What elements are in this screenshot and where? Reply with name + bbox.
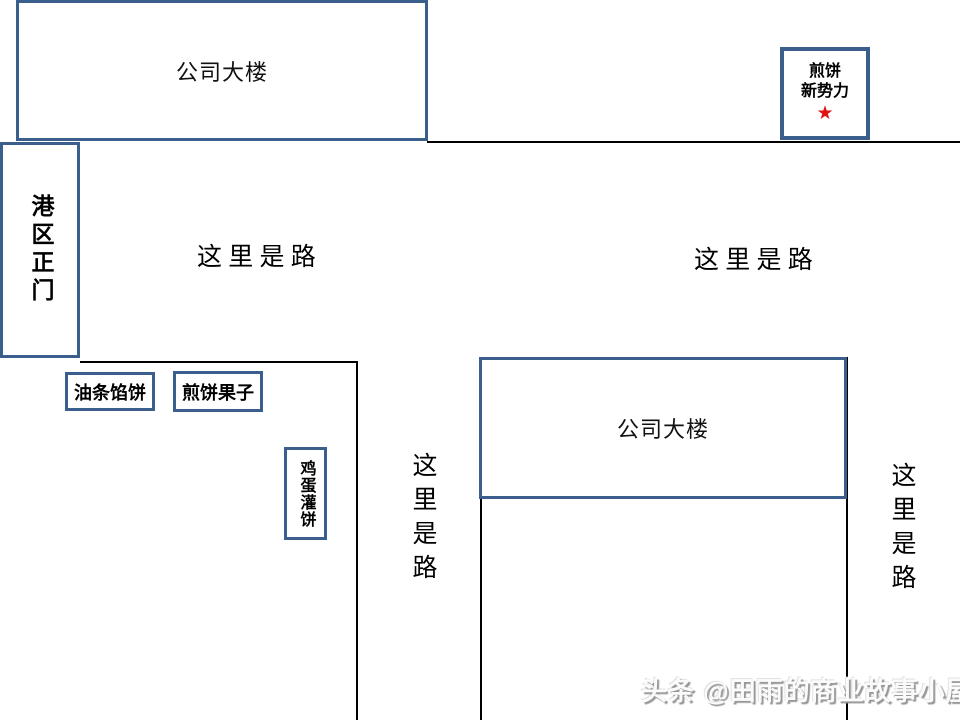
building-top-left: 公司大楼 [16, 0, 428, 141]
road-text-right: 这 里 是 路 [694, 240, 813, 276]
star-icon: ★ [816, 103, 833, 125]
snack-box-jianbing-guozi: 煎饼果子 [173, 371, 263, 412]
road-text-middle-vertical: 这里是路 [404, 452, 440, 588]
snack-label-jianbing-guozi: 煎饼果子 [182, 379, 254, 405]
snack-box-jidan-guanbing: 鸡蛋灌饼 [284, 447, 327, 540]
watermark-text: 头条 @田雨的商业故事小屋 [641, 671, 960, 708]
pancake-stall-box: 煎饼 新势力 ★ [780, 47, 870, 140]
street-map-diagram: 公司大楼 煎饼 新势力 ★ 港区正门 这 里 是 路 这 里 是 路 油条馅饼 … [0, 0, 960, 720]
lot-boundary-right-left-vertical [480, 499, 482, 720]
road-text-left: 这 里 是 路 [197, 237, 316, 273]
road-line-top [427, 141, 960, 143]
road-text-right-vertical: 这里是路 [883, 462, 919, 598]
building-bottom-right-label: 公司大楼 [617, 412, 709, 444]
pancake-stall-name-line2: 新势力 [801, 82, 849, 102]
pancake-stall-name-line1: 煎饼 [809, 62, 841, 82]
port-gate-box: 港区正门 [0, 142, 80, 358]
building-bottom-right: 公司大楼 [479, 357, 847, 499]
lot-boundary-left-vertical [356, 361, 358, 720]
port-gate-label: 港区正门 [23, 194, 57, 306]
snack-box-youtiao-xianbing: 油条馅饼 [65, 372, 155, 411]
building-top-left-label: 公司大楼 [176, 55, 268, 87]
lot-boundary-left-horizontal [80, 361, 358, 363]
snack-label-jidan-guanbing: 鸡蛋灌饼 [294, 460, 318, 528]
snack-label-youtiao-xianbing: 油条馅饼 [74, 379, 146, 405]
